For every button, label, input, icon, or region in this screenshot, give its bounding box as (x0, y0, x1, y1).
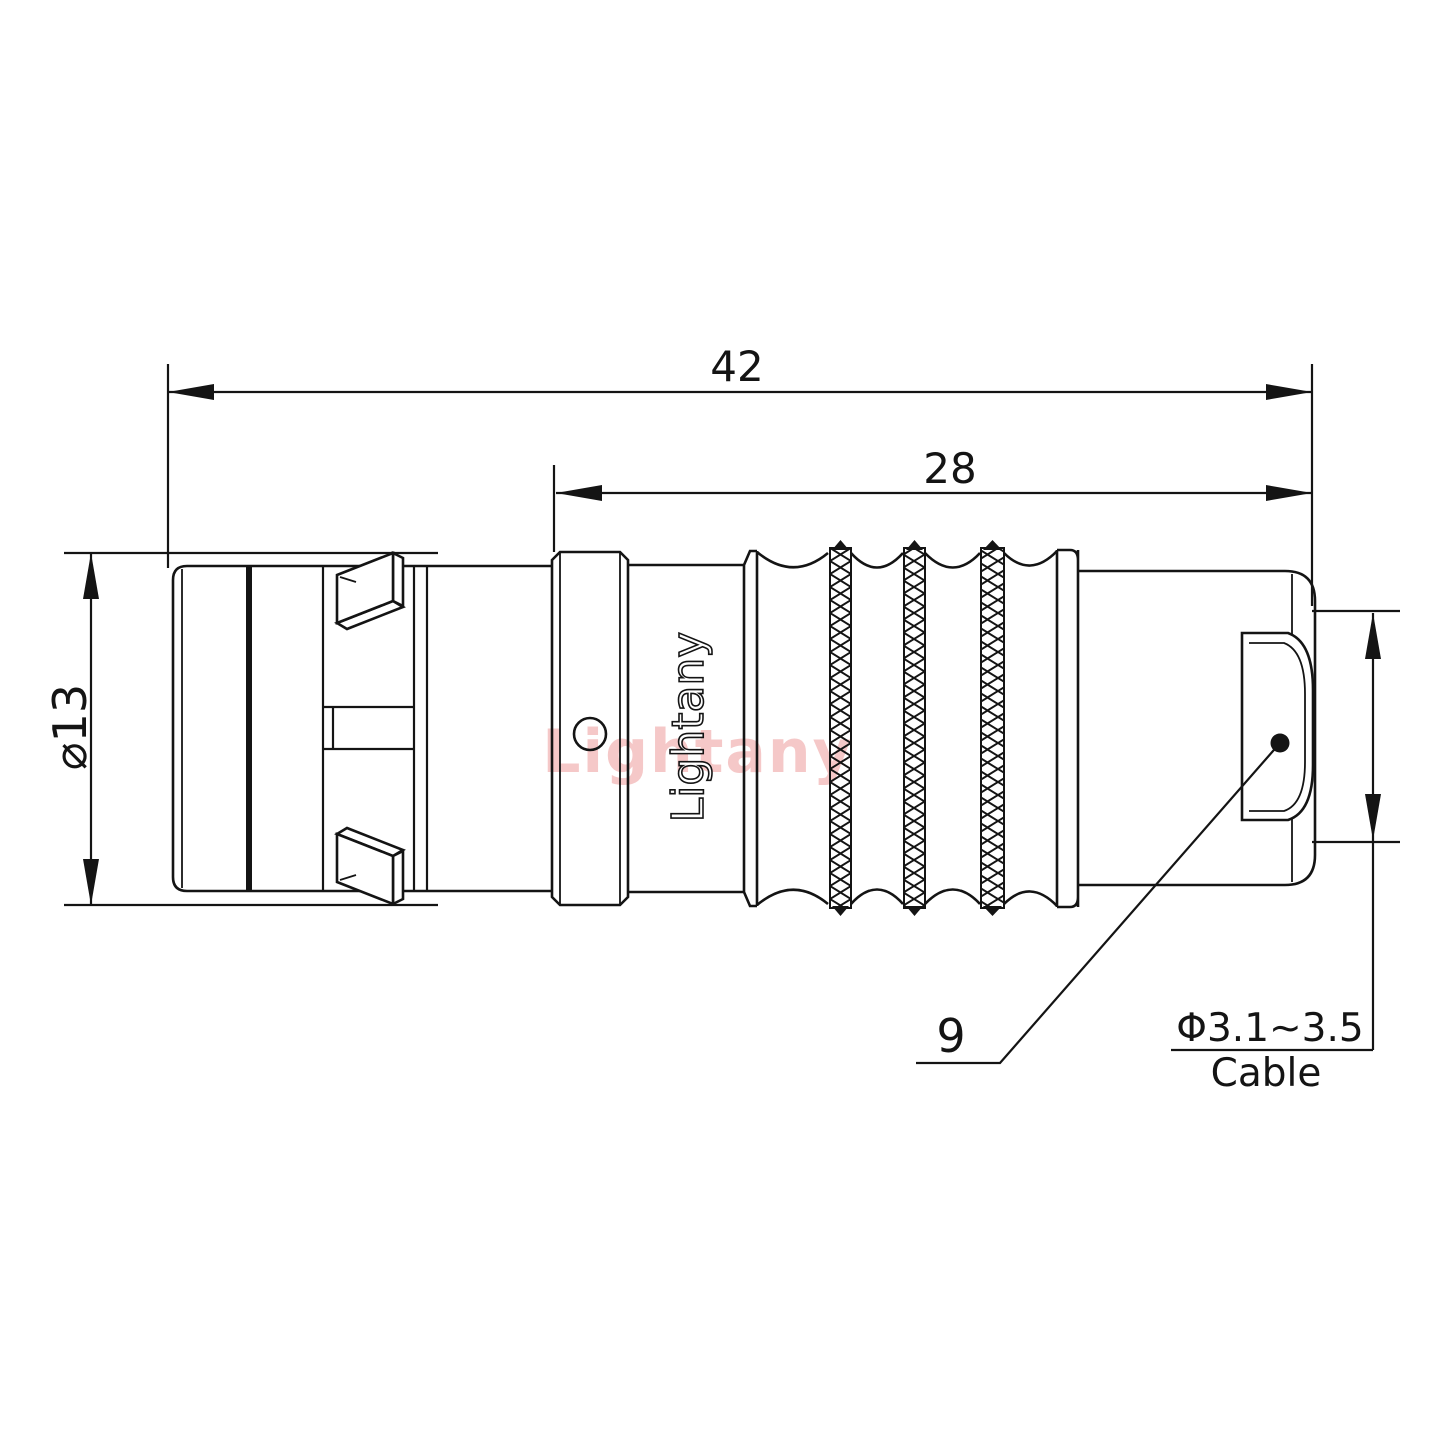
cable-window (1242, 633, 1313, 820)
drawing-page: Lightany (0, 0, 1440, 1440)
arrow-down-icon (83, 859, 99, 905)
dim-rear-label: 28 (923, 444, 976, 493)
cable-window-outer (1242, 633, 1313, 820)
arrow-down-icon (1365, 794, 1381, 840)
front-cap-step-line (246, 565, 252, 892)
arrow-up-icon (83, 553, 99, 599)
latch-window-lines (323, 707, 414, 749)
leader-dot-icon (1271, 734, 1290, 753)
barrel-edges (250, 566, 552, 891)
front-cap (173, 565, 252, 892)
knurl-band-3 (981, 540, 1004, 916)
latch-tab-bottom (337, 828, 403, 904)
cable-dim-ticks (1312, 611, 1400, 842)
latch-section (323, 553, 427, 904)
knurl-band-1 (830, 540, 851, 916)
knurl-flange-right (1057, 550, 1078, 907)
flange-right-lines (1057, 550, 1078, 907)
dim-overall-label: 42 (710, 342, 763, 391)
dim-rear: 28 (554, 444, 1312, 552)
ref-number-label: 9 (936, 1009, 965, 1063)
arrow-up-icon (1365, 613, 1381, 659)
technical-drawing: Lightany (0, 0, 1440, 1440)
arrow-right-icon (1266, 485, 1312, 501)
front-cap-outline (173, 566, 250, 891)
cable-text-label: Cable (1211, 1051, 1322, 1096)
cable-diameter-label: Φ3.1~3.5 (1176, 1006, 1363, 1051)
latch-tab-top (337, 553, 403, 629)
body-engraving-text: Lightany (663, 632, 714, 823)
connector-body: Lightany (173, 540, 1315, 916)
knurl-band-2 (904, 540, 925, 916)
tab-top-side (393, 553, 403, 606)
tab-bottom-side (393, 851, 403, 904)
arrow-left-icon (556, 485, 602, 501)
dim-diameter-label: ⌀13 (43, 684, 97, 770)
arrow-left-icon (168, 384, 214, 400)
arrow-right-icon (1266, 384, 1312, 400)
